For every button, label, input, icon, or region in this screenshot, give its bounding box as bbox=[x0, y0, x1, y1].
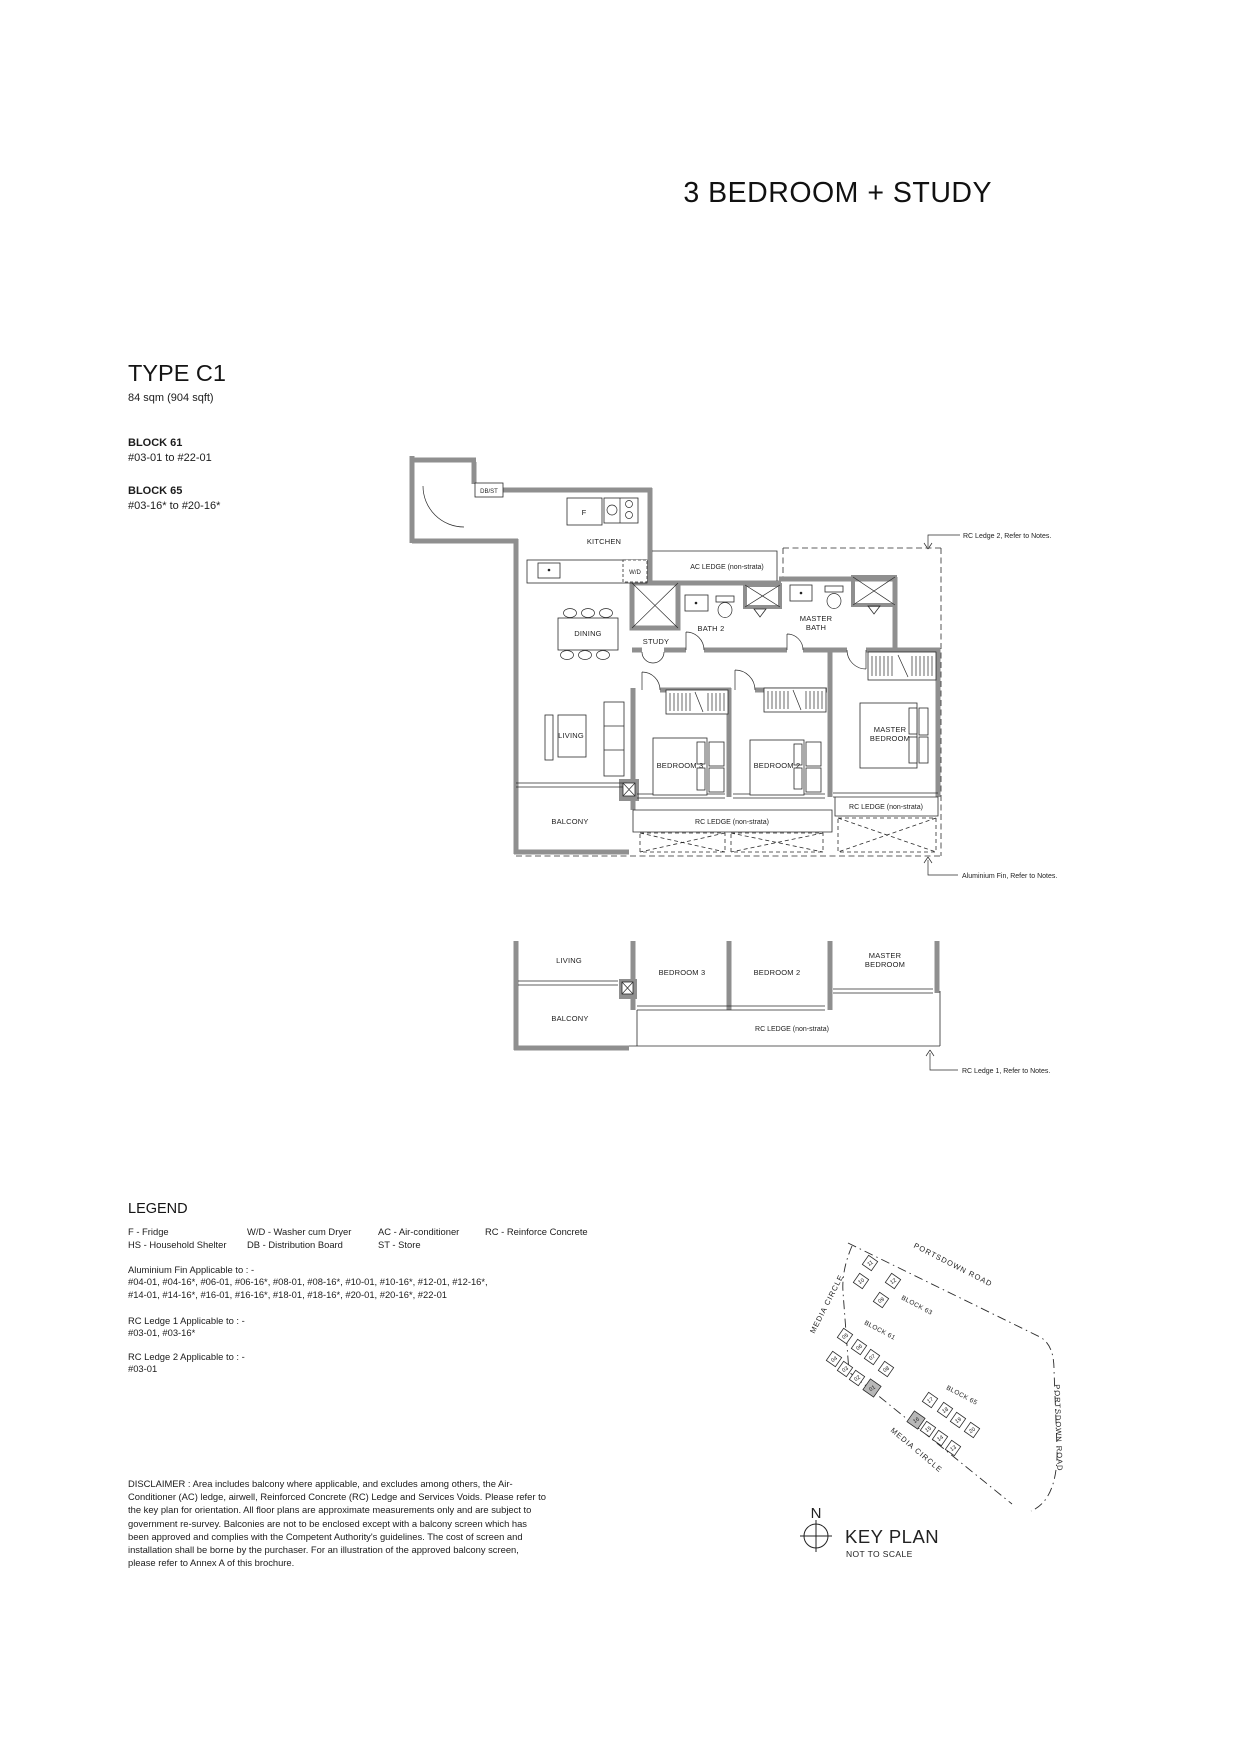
key-plan-block-61: BLOCK 61 05 06 07 08 04 03 02 01 bbox=[826, 1320, 896, 1398]
dining-label: DINING bbox=[574, 629, 601, 638]
fridge-label: F bbox=[582, 508, 587, 517]
bedroom3-label: BEDROOM 3 bbox=[657, 761, 704, 770]
lower-master-bedroom-label-line1: MASTER bbox=[869, 951, 902, 960]
legend-heading: LEGEND bbox=[128, 1201, 188, 1217]
bedroom2-wardrobe bbox=[764, 688, 826, 712]
dbst-label: DB/ST bbox=[480, 489, 498, 495]
master-bath-toilet-tank bbox=[825, 586, 843, 592]
block-65-range: #03-16* to #20-16* bbox=[128, 499, 220, 514]
rc-ledge-2-note: RC Ledge 2, Refer to Notes. bbox=[963, 533, 1051, 540]
master-bath-label-line1: MASTER bbox=[800, 614, 833, 623]
study-label: STUDY bbox=[643, 637, 669, 646]
living-label: LIVING bbox=[558, 731, 584, 740]
rc-ledge-2-line: #03-01 bbox=[128, 1363, 245, 1375]
fixtures-and-furniture bbox=[475, 483, 936, 795]
block-65-info: BLOCK 65 #03-16* to #20-16* bbox=[128, 484, 220, 513]
master-bedroom-label-line2: BEDROOM bbox=[870, 734, 910, 743]
road-portsdown-right-label: PORTSDOWN ROAD bbox=[1052, 1384, 1064, 1471]
lower-bedroom3-label: BEDROOM 3 bbox=[659, 968, 706, 977]
balcony-label: BALCONY bbox=[551, 817, 588, 826]
rc-ledge-2-applicability: RC Ledge 2 Applicable to : - #03-01 bbox=[128, 1351, 245, 1376]
plan-annotations: RC Ledge 2, Refer to Notes. Aluminium Fi… bbox=[924, 533, 1057, 1075]
sofa bbox=[604, 702, 624, 776]
bedroom3-wardrobe bbox=[666, 690, 728, 714]
master-bath-toilet-bowl bbox=[827, 594, 841, 609]
north-label: N bbox=[811, 1505, 822, 1522]
master-bath-label-line2: BATH bbox=[806, 623, 826, 632]
tv-console bbox=[545, 715, 553, 760]
road-media-circle-bottom-label: MEDIA CIRCLE bbox=[889, 1426, 945, 1475]
block-61-name: BLOCK 61 bbox=[128, 436, 212, 451]
stove bbox=[604, 498, 638, 523]
rc-ledge-1-title: RC Ledge 1 Applicable to : - bbox=[128, 1315, 245, 1327]
block-65-label: BLOCK 65 bbox=[945, 1385, 979, 1407]
aluminium-fin-applicability: Aluminium Fin Applicable to : - #04-01, … bbox=[128, 1264, 488, 1301]
legend-item-ac: AC - Air-conditioner bbox=[378, 1226, 459, 1237]
aluminium-fin-note: Aluminium Fin, Refer to Notes. bbox=[962, 873, 1057, 880]
floorplan-drawing: DB/ST F KITCHEN W/D AC LEDGE (non-strata… bbox=[395, 430, 1070, 1080]
bedroom2-label: BEDROOM 2 bbox=[754, 761, 801, 770]
rc-ledge-1-note: RC Ledge 1, Refer to Notes. bbox=[962, 1068, 1050, 1075]
lower-master-bedroom-label-line2: BEDROOM bbox=[865, 960, 905, 969]
kitchen-label: KITCHEN bbox=[587, 537, 621, 546]
unit-area: 84 sqm (904 sqft) bbox=[128, 392, 214, 404]
road-media-circle-left-label: MEDIA CIRCLE bbox=[808, 1273, 846, 1335]
aluminium-fin-title: Aluminium Fin Applicable to : - bbox=[128, 1264, 488, 1276]
block-61-label: BLOCK 61 bbox=[863, 1320, 897, 1342]
master-wardrobe bbox=[868, 652, 936, 680]
key-plan-title: KEY PLAN bbox=[845, 1526, 939, 1547]
block-61-range: #03-01 to #22-01 bbox=[128, 451, 212, 466]
road-portsdown-top-label: PORTSDOWN ROAD bbox=[912, 1241, 994, 1289]
legend-abbr-row-1: F - Fridge W/D - Washer cum Dryer AC - A… bbox=[128, 1226, 728, 1238]
rc-ledge-2-title: RC Ledge 2 Applicable to : - bbox=[128, 1351, 245, 1363]
lower-bedroom2-label: BEDROOM 2 bbox=[754, 968, 801, 977]
rc-ledge-right-label: RC LEDGE (non-strata) bbox=[849, 804, 923, 811]
block-61-info: BLOCK 61 #03-01 to #22-01 bbox=[128, 436, 212, 465]
bath2-label: BATH 2 bbox=[698, 624, 725, 633]
floorplan-page: 3 BEDROOM + STUDY TYPE C1 84 sqm (904 sq… bbox=[0, 0, 1240, 1754]
aluminium-fin-line-2: #14-01, #14-16*, #16-01, #16-16*, #18-01… bbox=[128, 1289, 488, 1301]
block-63-label: BLOCK 63 bbox=[900, 1295, 934, 1317]
block-65-name: BLOCK 65 bbox=[128, 484, 220, 499]
page-title: 3 BEDROOM + STUDY bbox=[600, 177, 992, 210]
bath2-toilet-bowl bbox=[718, 603, 732, 618]
washer-label: W/D bbox=[629, 570, 641, 576]
legend-abbr-row-2: HS - Household Shelter DB - Distribution… bbox=[128, 1239, 728, 1251]
key-plan-block-63: 11 10 12 09 BLOCK 63 bbox=[853, 1255, 933, 1316]
legend-item-washer: W/D - Washer cum Dryer bbox=[247, 1226, 351, 1237]
key-plan: PORTSDOWN ROAD MEDIA CIRCLE PORTSDOWN RO… bbox=[770, 1230, 1090, 1570]
lower-living-label: LIVING bbox=[556, 956, 582, 965]
unit-type-title: TYPE C1 bbox=[128, 360, 226, 387]
rc-ledge-1-applicability: RC Ledge 1 Applicable to : - #03-01, #03… bbox=[128, 1315, 245, 1340]
key-plan-subtitle: NOT TO SCALE bbox=[846, 1549, 913, 1559]
legend-item-fridge: F - Fridge bbox=[128, 1226, 169, 1237]
legend-item-st: ST - Store bbox=[378, 1239, 421, 1250]
lower-balcony-label: BALCONY bbox=[551, 1014, 588, 1023]
rc-ledge-1-line: #03-01, #03-16* bbox=[128, 1327, 245, 1339]
north-compass-icon: N bbox=[800, 1505, 832, 1552]
legend-item-hs: HS - Household Shelter bbox=[128, 1239, 227, 1250]
rc-ledge-center-label: RC LEDGE (non-strata) bbox=[695, 819, 769, 826]
master-bedroom-label-line1: MASTER bbox=[874, 725, 907, 734]
lower-rc-ledge-label: RC LEDGE (non-strata) bbox=[755, 1026, 829, 1033]
bath2-toilet-tank bbox=[716, 596, 734, 602]
ac-ledge-label: AC LEDGE (non-strata) bbox=[690, 564, 764, 571]
lower-plan: LIVING BALCONY BEDROOM 3 BEDROOM 2 MASTE… bbox=[514, 941, 940, 1050]
legend-item-rc: RC - Reinforce Concrete bbox=[485, 1226, 588, 1237]
aluminium-fin-line-1: #04-01, #04-16*, #06-01, #06-16*, #08-01… bbox=[128, 1276, 488, 1288]
disclaimer-text: DISCLAIMER : Area includes balcony where… bbox=[128, 1477, 549, 1569]
legend-item-db: DB - Distribution Board bbox=[247, 1239, 343, 1250]
